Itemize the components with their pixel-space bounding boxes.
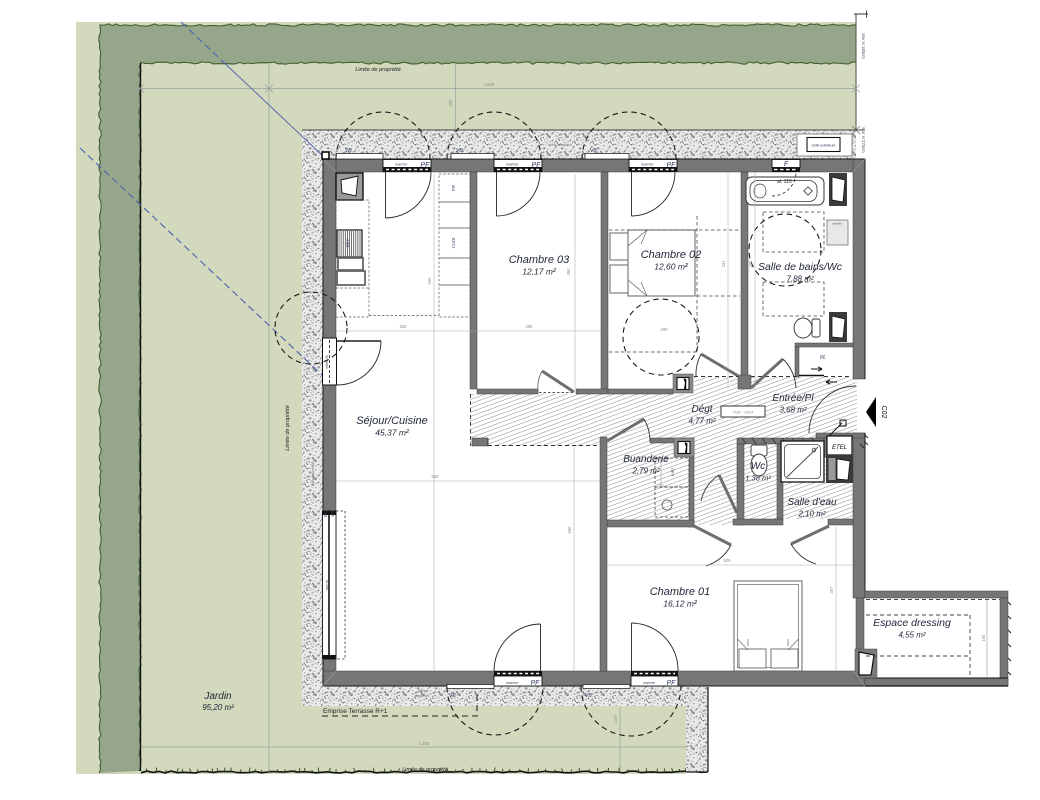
svg-text:MLV: MLV — [345, 238, 350, 248]
svg-text:TGP - 2614: TGP - 2614 — [733, 410, 754, 415]
svg-text:Unité extérieure: Unité extérieure — [812, 144, 836, 148]
svg-text:200: 200 — [661, 327, 669, 332]
svg-text:555: 555 — [432, 474, 440, 479]
svg-text:Chambre 02: Chambre 02 — [641, 249, 702, 261]
svg-text:3,68 m²: 3,68 m² — [779, 406, 806, 415]
svg-text:al. 115: al. 115 — [777, 179, 792, 185]
svg-text:Jardin: Jardin — [203, 691, 232, 702]
svg-text:VB: VB — [585, 693, 592, 699]
svg-text:désactivé: désactivé — [415, 694, 429, 698]
svg-text:16,12 m²: 16,12 m² — [663, 599, 698, 609]
svg-text:PF: PF — [531, 680, 541, 687]
svg-text:1.200: 1.200 — [419, 741, 430, 746]
svg-text:béton: béton — [418, 689, 427, 693]
svg-text:265: 265 — [526, 324, 534, 329]
svg-text:Buanderie: Buanderie — [623, 454, 669, 465]
svg-text:450: 450 — [566, 268, 571, 276]
svg-text:BC: BC — [323, 510, 328, 517]
svg-text:VB: VB — [590, 148, 597, 154]
svg-text:Chambre 03: Chambre 03 — [509, 254, 570, 266]
svg-text:7,88 m²: 7,88 m² — [786, 275, 813, 284]
svg-text:marche: marche — [506, 681, 518, 685]
svg-text:Limite de propriété: Limite de propriété — [285, 405, 291, 451]
svg-text:160: 160 — [981, 634, 986, 642]
svg-text:500: 500 — [567, 526, 572, 534]
svg-text:Séjour/Cuisine: Séjour/Cuisine — [356, 415, 428, 427]
svg-text:Dégt: Dégt — [691, 404, 713, 415]
svg-text:1.515: 1.515 — [484, 82, 495, 87]
svg-text:PF: PF — [667, 162, 677, 169]
svg-text:4,55 m²: 4,55 m² — [898, 631, 925, 640]
svg-text:431: 431 — [721, 260, 726, 268]
svg-text:525: 525 — [724, 558, 732, 563]
svg-text:Espace dressing: Espace dressing — [873, 617, 951, 629]
svg-text:béton désactivé: béton désactivé — [548, 143, 572, 147]
svg-text:meuble: meuble — [832, 222, 842, 226]
svg-text:marche: marche — [395, 163, 407, 167]
svg-text:CUIS: CUIS — [451, 238, 456, 249]
svg-text:VB: VB — [449, 693, 456, 699]
svg-text:Béton désactivé: Béton désactivé — [311, 462, 315, 486]
svg-text:VB: VB — [456, 148, 463, 154]
svg-text:307: 307 — [829, 586, 834, 594]
svg-text:Wc: Wc — [751, 461, 765, 472]
svg-text:PL: PL — [820, 355, 826, 361]
svg-text:VR: VR — [330, 510, 335, 517]
svg-text:PF: PF — [421, 162, 431, 169]
svg-text:marche: marche — [325, 579, 329, 590]
svg-text:Salle d'eau: Salle d'eau — [787, 497, 837, 508]
svg-text:12,17 m²: 12,17 m² — [522, 267, 557, 277]
svg-text:Salle de bains/Wc: Salle de bains/Wc — [758, 261, 843, 273]
svg-text:Mur H 270cm: Mur H 270cm — [861, 127, 866, 153]
svg-text:LAV: LAV — [670, 467, 675, 476]
svg-text:Emprise Terrasse R+1: Emprise Terrasse R+1 — [323, 708, 388, 715]
svg-text:marche: marche — [641, 163, 653, 167]
svg-text:entrée 90: entrée 90 — [325, 355, 329, 369]
svg-text:1,38 m²: 1,38 m² — [745, 474, 771, 483]
svg-text:431: 431 — [748, 260, 753, 268]
svg-text:Chambre 01: Chambre 01 — [650, 586, 711, 598]
svg-text:283: 283 — [400, 324, 408, 329]
svg-text:PF: PF — [667, 680, 677, 687]
svg-text:12,60 m²: 12,60 m² — [654, 262, 689, 272]
svg-text:Limite de propriété: Limite de propriété — [402, 767, 448, 773]
svg-text:200: 200 — [448, 99, 453, 107]
svg-text:95,20 m²: 95,20 m² — [202, 703, 234, 712]
svg-text:marche: marche — [643, 681, 655, 685]
svg-text:2,79 m²: 2,79 m² — [631, 467, 659, 476]
svg-text:PF: PF — [532, 162, 542, 169]
svg-text:F: F — [784, 161, 789, 168]
svg-text:FR: FR — [451, 184, 456, 191]
svg-text:C02: C02 — [880, 406, 887, 419]
svg-text:45,37 m²: 45,37 m² — [375, 428, 410, 438]
svg-text:Mur H 180cm: Mur H 180cm — [861, 33, 866, 59]
svg-text:4,77 m²: 4,77 m² — [688, 417, 715, 426]
svg-text:1.87: 1.87 — [613, 714, 618, 723]
svg-text:Entrée/Pl: Entrée/Pl — [772, 393, 814, 404]
svg-text:655: 655 — [427, 277, 432, 285]
svg-text:VB: VB — [345, 148, 352, 154]
svg-text:ETEL: ETEL — [832, 445, 847, 451]
svg-text:Limite de propriété: Limite de propriété — [355, 67, 401, 73]
svg-text:2,10 m²: 2,10 m² — [797, 510, 825, 519]
svg-text:marche: marche — [506, 163, 518, 167]
